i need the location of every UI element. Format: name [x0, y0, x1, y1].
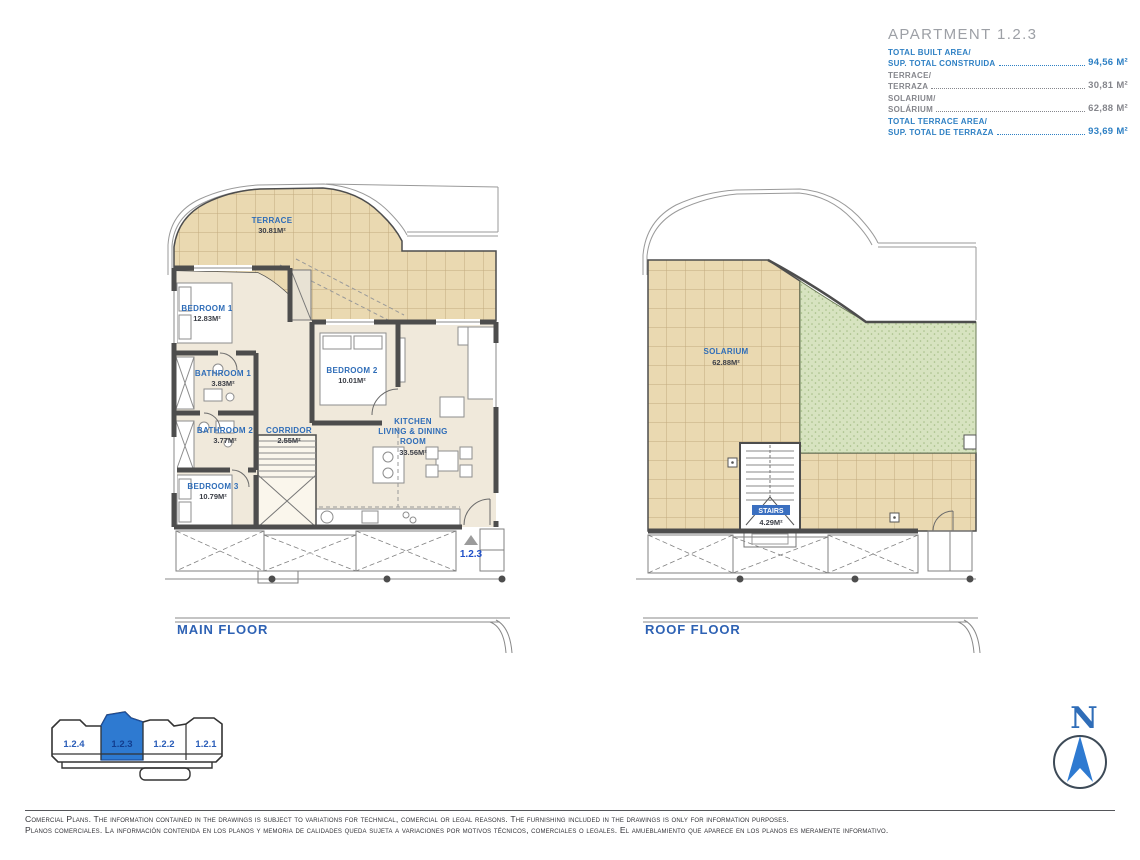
svg-text:62.88M²: 62.88M² [712, 358, 740, 367]
keyplan-unit-1-2-3: 1.2.3 [111, 739, 132, 750]
metric-terrace: TERRACE/ TERRAZA30,81 M² [888, 71, 1128, 91]
svg-text:LIVING & DINING: LIVING & DINING [378, 427, 447, 436]
closet-hatch [291, 270, 311, 320]
svg-text:12.83M²: 12.83M² [193, 314, 221, 323]
metric-value: 94,56 M² [1088, 57, 1128, 68]
north-label: N [1070, 701, 1097, 736]
dot-leader [936, 111, 1085, 112]
label-bathroom2: BATHROOM 2 [197, 426, 253, 435]
green-edge-box [964, 435, 976, 449]
label-bedroom3: BEDROOM 3 [187, 482, 238, 491]
label-bedroom1: BEDROOM 1 [181, 304, 232, 313]
keyplan-unit-1-2-2: 1.2.2 [153, 739, 174, 750]
apartment-title: APARTMENT 1.2.3 [888, 26, 1128, 43]
main-floor-title: MAIN FLOOR [177, 622, 268, 637]
svg-text:ROOM: ROOM [400, 437, 426, 446]
dot-leader [997, 134, 1085, 135]
svg-text:KITCHEN: KITCHEN [394, 417, 432, 426]
unit-entrance-marker: 1.2.3 [460, 535, 483, 560]
stairs [258, 435, 316, 527]
roof-balcony-strip [636, 531, 976, 579]
svg-text:10.01M²: 10.01M² [338, 376, 366, 385]
metric-value: 93,69 M² [1088, 126, 1128, 137]
svg-text:3.77M²: 3.77M² [213, 436, 237, 445]
label-terrace: TERRACE [252, 216, 293, 225]
main-floor-plan-svg: TERRACE 30.81M² BEDROOM 1 12.83M² BATHRO… [160, 175, 540, 655]
roof-floor-title: ROOF FLOOR [645, 622, 741, 637]
svg-text:4.29M²: 4.29M² [759, 518, 783, 527]
roof-floor-plan-svg: STAIRS 4.29M² SOLARIUM 62.88M² [628, 175, 1008, 655]
svg-text:30.81M²: 30.81M² [258, 226, 286, 235]
svg-text:33.56M²: 33.56M² [399, 448, 427, 457]
metric-total-built-area: TOTAL BUILT AREA/ SUP. TOTAL CONSTRUIDA9… [888, 48, 1128, 68]
green-roof-area [800, 281, 976, 453]
building-key-plan: 1.2.4 1.2.3 1.2.2 1.2.1 [22, 698, 237, 808]
disclaimer-line-en: Comercial Plans. The information contain… [25, 814, 1115, 825]
balcony-strip [165, 529, 505, 583]
svg-text:1.2.3: 1.2.3 [460, 549, 483, 560]
svg-text:10.79M²: 10.79M² [199, 492, 227, 501]
disclaimer-line-es: Planos comerciales. La información conte… [25, 825, 1115, 836]
area-summary-panel: APARTMENT 1.2.3 TOTAL BUILT AREA/ SUP. T… [888, 26, 1128, 140]
keyplan-base [62, 762, 212, 780]
keyplan-unit-1-2-4: 1.2.4 [63, 739, 85, 750]
metric-total-terrace-area: TOTAL TERRACE AREA/ SUP. TOTAL DE TERRAZ… [888, 117, 1128, 137]
metric-value: 30,81 M² [1088, 80, 1128, 91]
dot-leader [931, 88, 1085, 89]
svg-text:2.55M²: 2.55M² [277, 436, 301, 445]
keyplan-unit-1-2-1: 1.2.1 [195, 739, 217, 750]
disclaimer: Comercial Plans. The information contain… [25, 810, 1115, 836]
dot-leader [999, 65, 1086, 66]
label-bathroom1: BATHROOM 1 [195, 369, 251, 378]
label-solarium: SOLARIUM [703, 347, 748, 356]
north-compass: N [1044, 696, 1119, 804]
north-arrow-icon [1067, 736, 1093, 782]
label-bedroom2: BEDROOM 2 [326, 366, 377, 375]
label-stairs: STAIRS [758, 508, 783, 515]
metric-solarium: SOLARIUM/ SOLÁRIUM62,88 M² [888, 94, 1128, 114]
label-corridor: CORRIDOR [266, 426, 312, 435]
metric-value: 62,88 M² [1088, 103, 1128, 114]
svg-text:3.83M²: 3.83M² [211, 379, 235, 388]
